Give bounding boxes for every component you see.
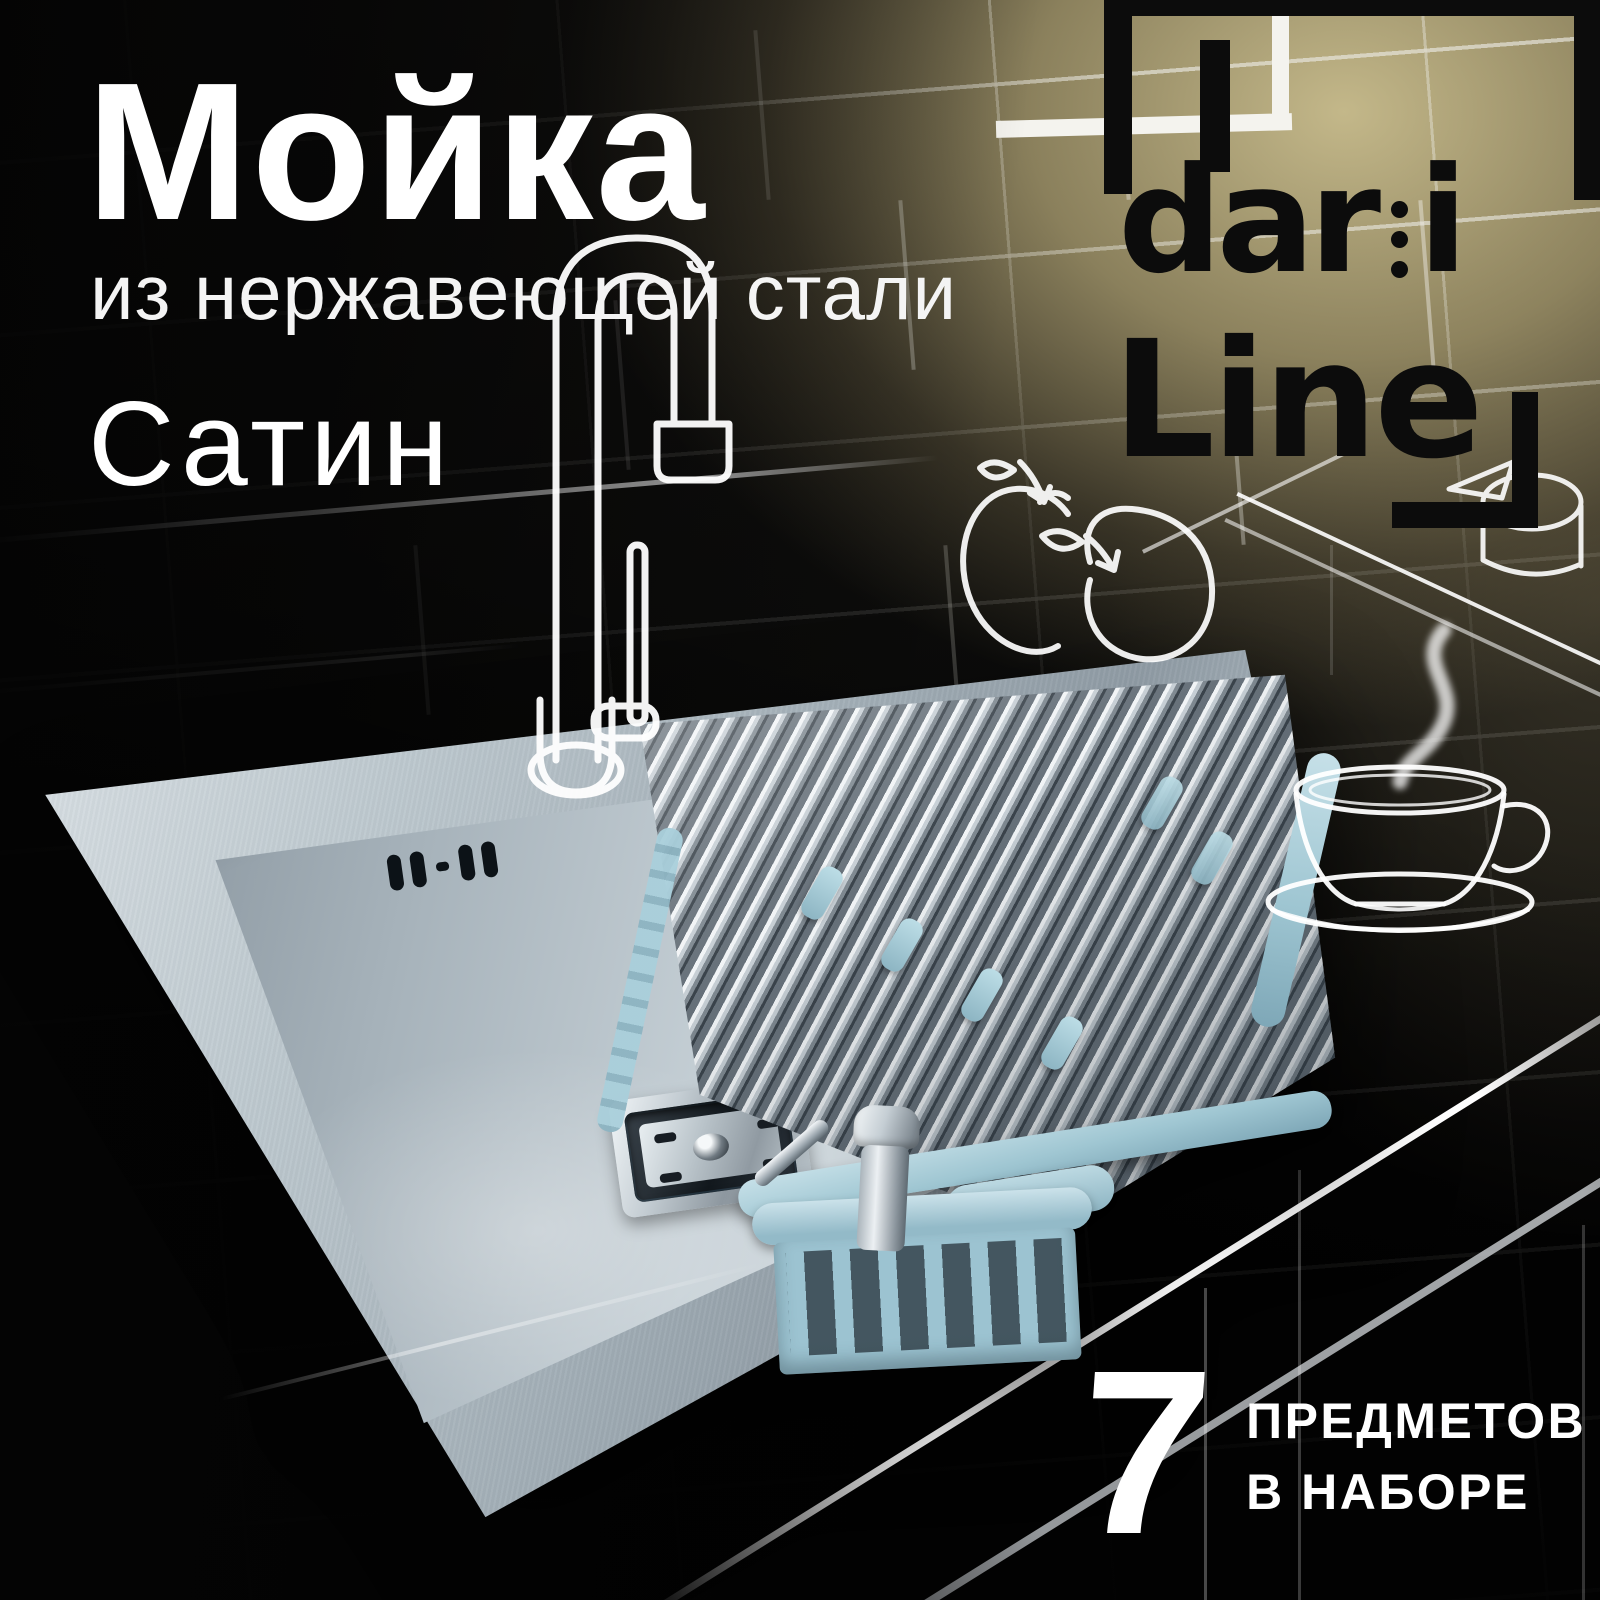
steam-icon	[1400, 630, 1447, 782]
logo-dots-decoration	[1391, 201, 1408, 278]
logo-word-dari-part2: i	[1418, 148, 1462, 294]
logo-bracket-bottom-right-horizontal	[1392, 502, 1538, 528]
brand-logo: dar i Line	[1072, 0, 1600, 560]
items-count-badge: 7 ПРЕДМЕТОВ В НАБОРЕ	[1078, 1350, 1588, 1590]
logo-dot	[1391, 201, 1408, 218]
logo-bracket-right	[1574, 0, 1600, 200]
logo-bracket-top	[1104, 0, 1600, 16]
badge-label-line2: В НАБОРЕ	[1246, 1457, 1586, 1528]
logo-word-dari: dar i	[1118, 148, 1462, 294]
page-title: Мойка	[86, 54, 707, 250]
logo-dot	[1391, 231, 1408, 248]
coffee-cup-outline-icon	[1268, 630, 1548, 931]
badge-label-line1: ПРЕДМЕТОВ	[1246, 1386, 1586, 1457]
logo-word-dari-part1: dar	[1118, 148, 1375, 294]
badge-count: 7	[1070, 1350, 1217, 1590]
page-subtitle: из нержавеющей стали	[90, 250, 957, 336]
product-banner: Мойка из нержавеющей стали Сатин dar i L…	[0, 0, 1600, 1600]
logo-word-line: Line	[1112, 320, 1480, 482]
finish-label: Сатин	[88, 378, 453, 510]
logo-dot	[1391, 261, 1408, 278]
badge-labels: ПРЕДМЕТОВ В НАБОРЕ	[1246, 1386, 1586, 1590]
